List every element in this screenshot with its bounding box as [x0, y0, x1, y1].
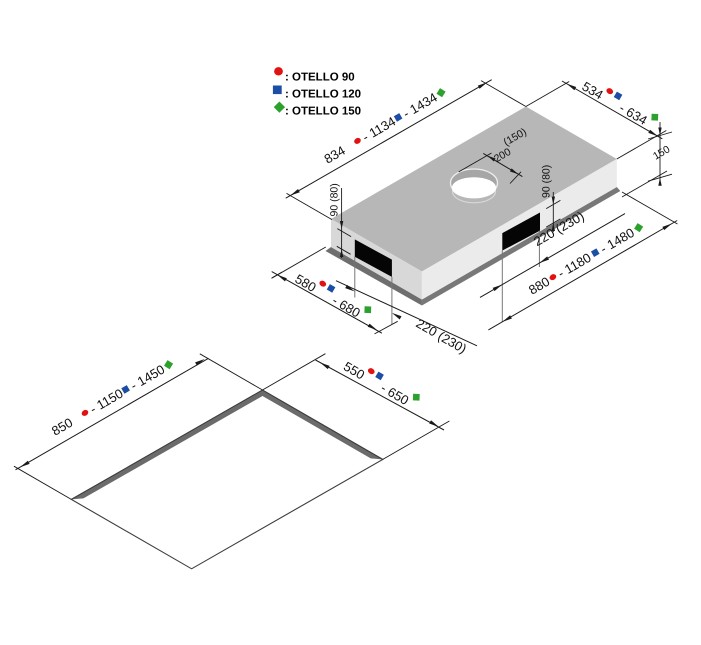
- svg-text:- 1134: - 1134: [360, 114, 399, 145]
- svg-text:: OTELLO 90: : OTELLO 90: [285, 72, 355, 84]
- svg-text:- 1434: - 1434: [400, 90, 439, 121]
- svg-text:850: 850: [49, 415, 75, 439]
- svg-text:: OTELLO 150: : OTELLO 150: [285, 106, 361, 118]
- svg-text:- 1150: - 1150: [87, 386, 126, 417]
- svg-text:- 1180: - 1180: [555, 250, 594, 281]
- svg-text:534: 534: [580, 79, 606, 103]
- svg-text:150: 150: [651, 143, 672, 162]
- svg-text:- 680: - 680: [330, 293, 363, 321]
- svg-text:- 1450: - 1450: [128, 362, 167, 393]
- svg-text:- 1480: - 1480: [597, 225, 636, 256]
- svg-text:880: 880: [526, 274, 552, 298]
- svg-text:834: 834: [322, 143, 348, 167]
- svg-text:550: 550: [341, 359, 367, 383]
- svg-text:580: 580: [293, 271, 319, 295]
- svg-text:90 (80): 90 (80): [329, 183, 341, 216]
- svg-text:- 634: - 634: [617, 100, 650, 128]
- svg-text:90 (80): 90 (80): [541, 165, 553, 198]
- svg-text:220 (230): 220 (230): [414, 316, 470, 357]
- svg-text:: OTELLO 120: : OTELLO 120: [285, 89, 361, 101]
